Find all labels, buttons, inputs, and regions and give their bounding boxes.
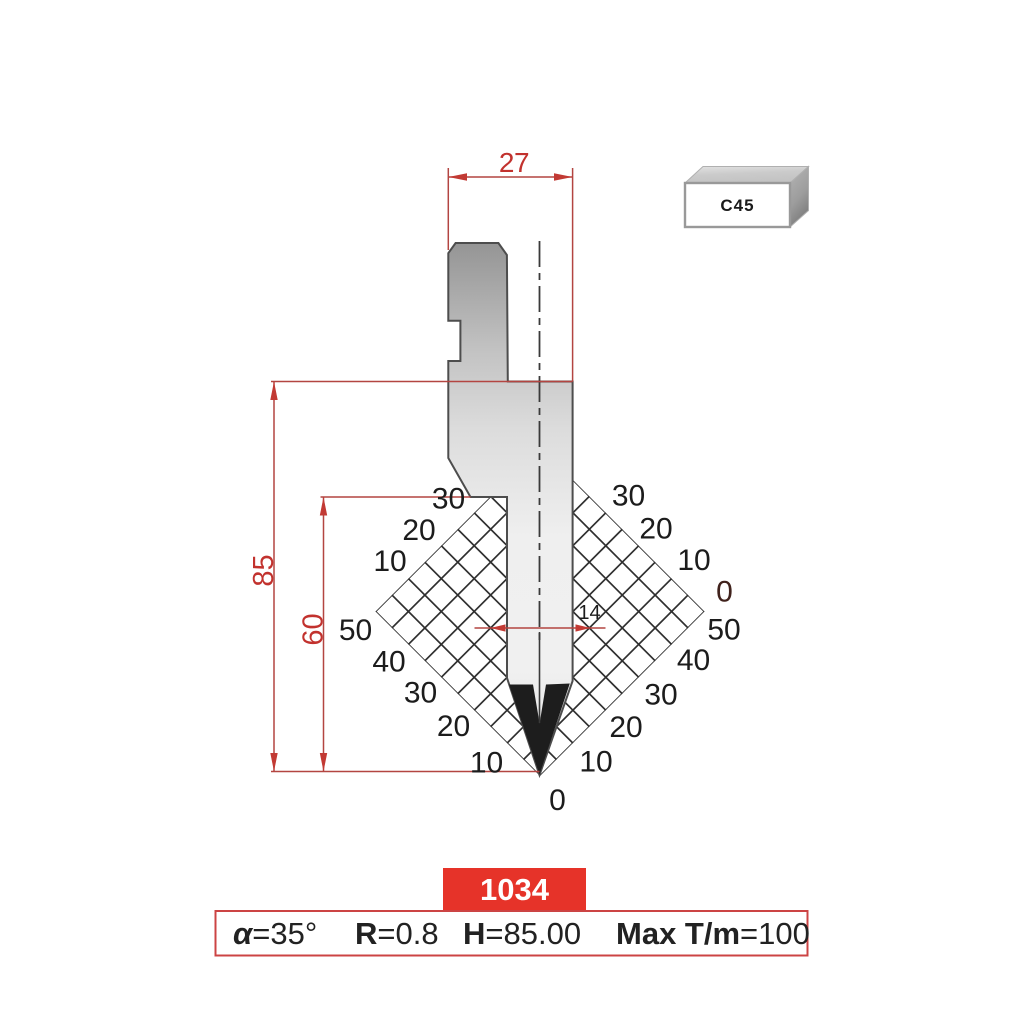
svg-text:30: 30 bbox=[404, 677, 437, 710]
svg-text:20: 20 bbox=[639, 513, 672, 546]
svg-text:20: 20 bbox=[609, 711, 642, 744]
svg-text:14: 14 bbox=[578, 602, 600, 624]
svg-text:27: 27 bbox=[499, 147, 529, 178]
svg-text:10: 10 bbox=[579, 746, 612, 779]
svg-text:H=85.00: H=85.00 bbox=[463, 916, 581, 951]
svg-text:C45: C45 bbox=[720, 196, 754, 215]
svg-text:0: 0 bbox=[716, 576, 733, 609]
svg-text:0: 0 bbox=[549, 784, 566, 817]
svg-text:30: 30 bbox=[432, 483, 465, 516]
svg-text:30: 30 bbox=[644, 679, 677, 712]
svg-text:20: 20 bbox=[437, 710, 470, 743]
svg-text:30: 30 bbox=[612, 480, 645, 513]
svg-text:10: 10 bbox=[677, 544, 710, 577]
svg-text:Max T/m=100: Max T/m=100 bbox=[616, 916, 810, 951]
svg-text:α=35°: α=35° bbox=[233, 916, 317, 951]
svg-text:1034: 1034 bbox=[480, 872, 550, 907]
svg-text:60: 60 bbox=[298, 613, 330, 645]
svg-text:40: 40 bbox=[677, 644, 710, 677]
svg-text:10: 10 bbox=[373, 545, 406, 578]
svg-text:50: 50 bbox=[707, 614, 740, 647]
svg-text:10: 10 bbox=[470, 747, 503, 780]
svg-text:85: 85 bbox=[248, 554, 280, 586]
svg-text:R=0.8: R=0.8 bbox=[355, 916, 439, 951]
svg-text:20: 20 bbox=[402, 514, 435, 547]
svg-text:40: 40 bbox=[372, 646, 405, 679]
svg-text:50: 50 bbox=[339, 614, 372, 647]
